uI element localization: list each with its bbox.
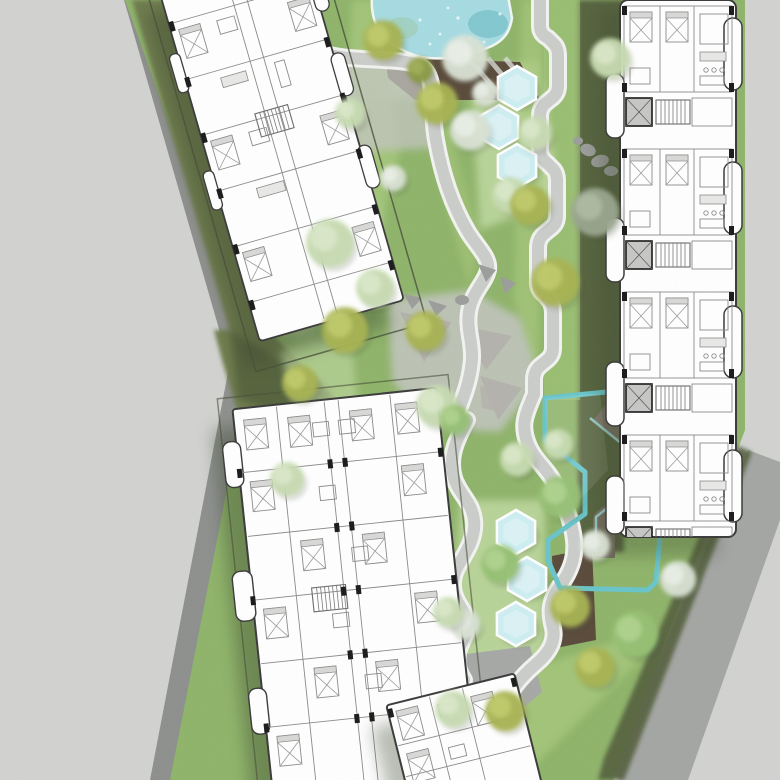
render-grain [0,0,780,780]
site-plan-canvas [0,0,780,780]
masterplan-drawing [0,0,780,780]
